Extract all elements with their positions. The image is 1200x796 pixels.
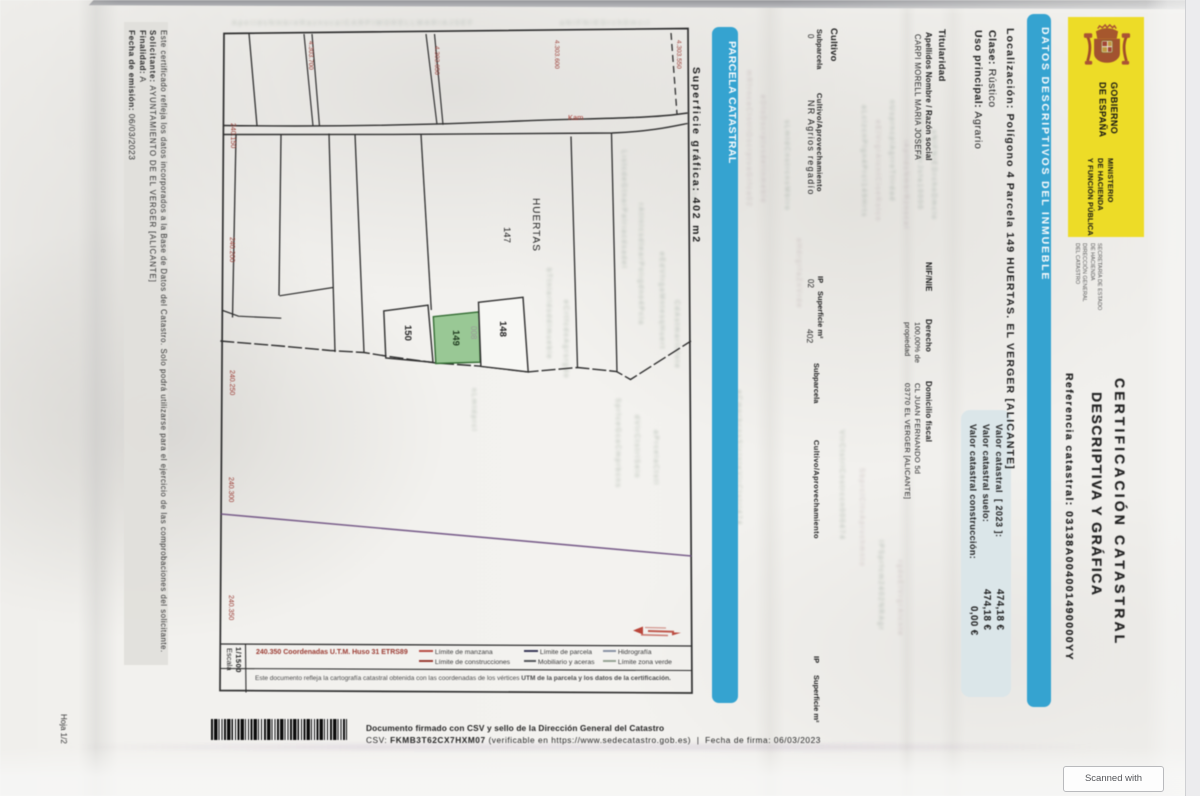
svg-text:Kam: Kam xyxy=(568,113,583,122)
svg-text:008: 008 xyxy=(469,326,478,340)
svg-text:147: 147 xyxy=(501,227,512,243)
svg-text:4.303.650: 4.303.650 xyxy=(433,46,440,75)
svg-text:240.150: 240.150 xyxy=(229,123,236,148)
svg-text:240.300: 240.300 xyxy=(227,477,234,502)
svg-text:240.350: 240.350 xyxy=(227,595,234,620)
svg-text:240.250: 240.250 xyxy=(228,370,235,395)
svg-text:148: 148 xyxy=(497,321,508,337)
svg-text:4.303.700: 4.303.700 xyxy=(307,41,314,70)
svg-text:240.200: 240.200 xyxy=(228,237,235,262)
svg-text:4.303.600: 4.303.600 xyxy=(553,40,560,69)
svg-text:HUERTAS: HUERTAS xyxy=(530,198,541,252)
svg-text:4.303.550: 4.303.550 xyxy=(675,40,682,69)
svg-text:149: 149 xyxy=(450,330,461,346)
svg-text:150: 150 xyxy=(402,325,413,341)
